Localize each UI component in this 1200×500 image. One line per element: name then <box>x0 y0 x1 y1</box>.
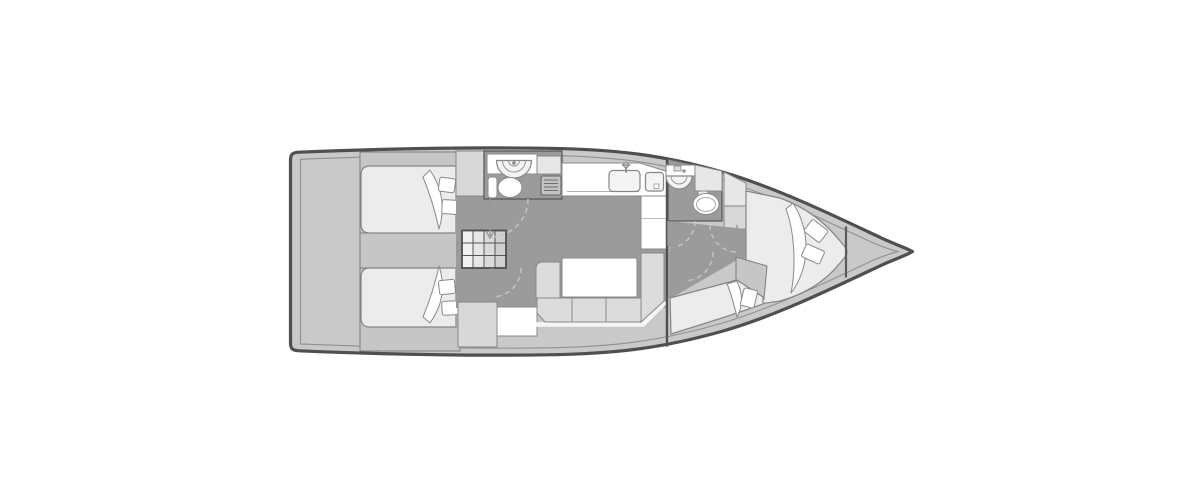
aft-cabins <box>360 152 460 351</box>
toilet-bowl <box>697 198 716 212</box>
pillow-icon <box>442 301 459 316</box>
dining-table <box>562 258 637 297</box>
wardrobe-cabinet <box>456 151 484 196</box>
drain-icon <box>512 161 516 165</box>
yacht-floorplan <box>0 0 1200 500</box>
pillow-icon <box>438 177 456 193</box>
fwd-head <box>666 159 746 229</box>
locker-panel-lower <box>724 206 746 229</box>
aft-head <box>484 151 562 207</box>
soap-tray <box>674 166 681 171</box>
salon-settee <box>536 253 666 325</box>
toilet-tank <box>488 177 497 198</box>
settee-backrest <box>536 262 560 299</box>
galley-counter-return <box>641 196 667 249</box>
floorplan-canvas <box>0 0 1200 500</box>
faucet-icon <box>682 169 686 173</box>
aft-head-cabinet <box>537 156 561 174</box>
companionway-stairs <box>462 231 506 269</box>
galley-sink-large <box>609 171 640 192</box>
toilet-icon <box>498 178 522 198</box>
lower-cabinet <box>458 302 497 347</box>
vanity-counter <box>497 307 537 336</box>
fwd-head-cabinet <box>695 165 722 191</box>
drain-icon <box>654 184 659 189</box>
settee-bench <box>537 298 641 322</box>
pillow-icon <box>438 279 455 295</box>
pillow-icon <box>442 199 459 214</box>
vent-grate-icon <box>541 176 561 195</box>
